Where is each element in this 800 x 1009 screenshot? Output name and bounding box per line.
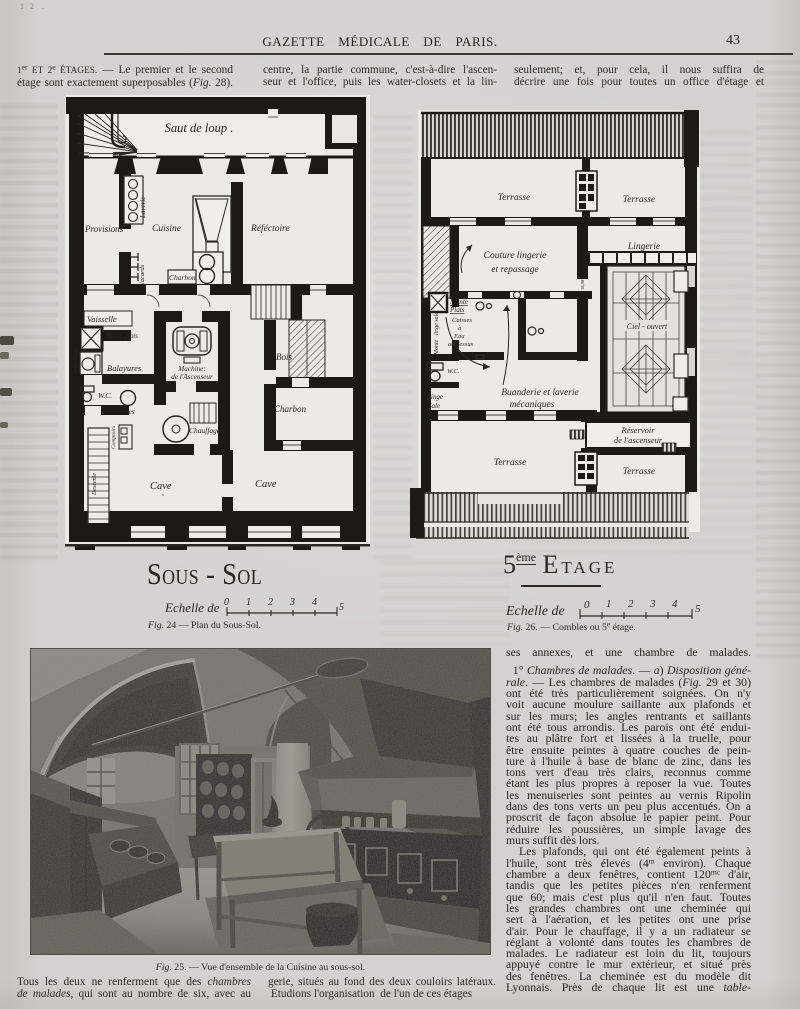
svg-text:Caisses: Caisses — [452, 317, 472, 324]
svg-text:Plats: Plats — [449, 306, 465, 314]
svg-text:2: 2 — [268, 597, 273, 608]
svg-text:Eau: Eau — [453, 333, 465, 340]
svg-text:Comptoirs: Comptoirs — [111, 426, 117, 449]
svg-text:Réféctoire: Réféctoire — [250, 223, 290, 234]
svg-text:1: 1 — [246, 597, 251, 608]
svg-text:W.C.: W.C. — [447, 368, 460, 375]
svg-text:Saut de loup .: Saut de loup . — [165, 121, 234, 135]
svg-text:Terrasse: Terrasse — [498, 193, 530, 203]
svg-text:1: 1 — [606, 598, 612, 610]
svg-text:0: 0 — [224, 597, 229, 608]
svg-text:Chauffage: Chauffage — [189, 426, 221, 435]
svg-text:5: 5 — [339, 602, 344, 613]
svg-text:W.C.: W.C. — [98, 391, 112, 400]
svg-text:de l'ascenseur: de l'ascenseur — [614, 435, 663, 445]
svg-text:Terrasse: Terrasse — [494, 458, 526, 468]
svg-text:Provisions: Provisions — [84, 224, 124, 234]
svg-text:3: 3 — [649, 598, 656, 610]
svg-text:Laverie: Laverie — [139, 197, 147, 219]
svg-text:Cave: Cave — [150, 481, 172, 492]
svg-text:Monte-plats: Monte-plats — [104, 333, 138, 340]
svg-text:à: à — [458, 325, 461, 332]
svg-text:de l'Ascenseur: de l'Ascenseur — [171, 373, 213, 381]
svg-text:Réservoir: Réservoir — [620, 425, 655, 435]
svg-text:Cuisine: Cuisine — [152, 224, 181, 234]
svg-text:Couture lingerie: Couture lingerie — [484, 251, 547, 261]
svg-text:et repassage: et repassage — [491, 265, 538, 275]
svg-text:Terrasse: Terrasse — [623, 195, 655, 205]
svg-text:Balayures: Balayures — [107, 363, 142, 373]
svg-text:Descente: Descente — [92, 473, 98, 496]
svg-text:0: 0 — [584, 599, 590, 611]
svg-text:Monte-linge: Monte-linge — [73, 349, 79, 377]
svg-text:4: 4 — [312, 597, 317, 608]
svg-text:mécaniques: mécaniques — [510, 400, 555, 410]
svg-text:2: 2 — [628, 598, 634, 610]
svg-text:Charbon: Charbon — [169, 273, 196, 282]
svg-text:Cave: Cave — [255, 479, 277, 490]
svg-text:Bois: Bois — [276, 352, 292, 362]
svg-text:Lingerie: Lingerie — [627, 242, 660, 252]
svg-text:Monte · linge sale: Monte · linge sale — [434, 312, 440, 356]
svg-text:Sale: Sale — [428, 402, 440, 410]
svg-text:Echelle de: Echelle de — [165, 600, 220, 615]
svg-text:Ciel - ouvert: Ciel - ouvert — [627, 322, 668, 331]
svg-text:Buanderie et laverie: Buanderie et laverie — [501, 388, 579, 398]
svg-text:3: 3 — [289, 597, 295, 608]
svg-text:4: 4 — [672, 598, 678, 610]
svg-text:au dessus: au dessus — [448, 341, 474, 348]
svg-text:5: 5 — [695, 603, 701, 615]
svg-text:Linge: Linge — [426, 393, 443, 401]
svg-text:Terrasse: Terrasse — [623, 467, 655, 477]
svg-text:Charbon: Charbon — [274, 404, 307, 414]
svg-text:Echelle de: Echelle de — [506, 604, 565, 619]
svg-text:Vaisselle: Vaisselle — [87, 314, 117, 324]
svg-text:Machine:: Machine: — [177, 365, 206, 373]
